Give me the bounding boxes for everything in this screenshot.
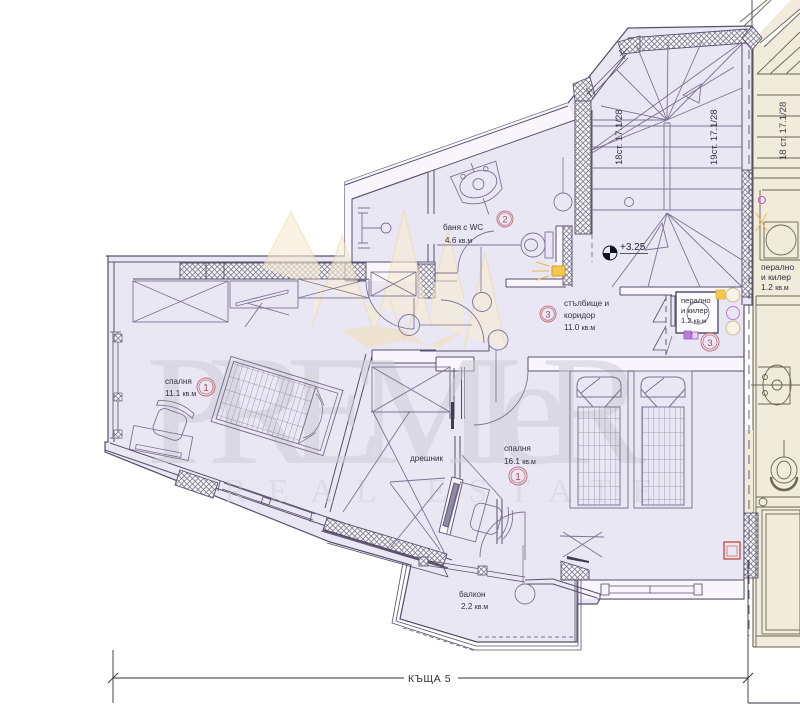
- svg-text:КЪЩА 5: КЪЩА 5: [408, 673, 451, 685]
- svg-text:баня с WC: баня с WC: [443, 223, 483, 232]
- svg-text:3: 3: [707, 338, 712, 348]
- svg-text:дрешник: дрешник: [410, 454, 444, 463]
- svg-text:19ст. 17.1/28: 19ст. 17.1/28: [709, 109, 720, 165]
- svg-text:11.0 кв.м: 11.0 кв.м: [564, 323, 595, 332]
- svg-text:перално: перално: [761, 262, 794, 272]
- svg-text:стълбище и: стълбище и: [564, 299, 609, 308]
- svg-text:спалня: спалня: [165, 377, 192, 386]
- svg-text:и килер: и килер: [761, 272, 791, 282]
- svg-text:балкон: балкон: [459, 590, 486, 599]
- svg-text:4.6 кв.м: 4.6 кв.м: [445, 236, 472, 245]
- svg-text:и килер: и килер: [681, 306, 708, 315]
- svg-text:2: 2: [502, 215, 507, 225]
- svg-text:3: 3: [545, 310, 550, 320]
- svg-text:перално: перално: [681, 296, 711, 305]
- svg-text:1: 1: [515, 472, 521, 483]
- svg-text:коридор: коридор: [564, 311, 596, 320]
- svg-text:1: 1: [203, 383, 209, 394]
- svg-text:18 ст. 17.1/28: 18 ст. 17.1/28: [778, 102, 789, 160]
- svg-text:11.1 кв.м: 11.1 кв.м: [165, 389, 196, 398]
- svg-text:18ст. 17.1/28: 18ст. 17.1/28: [614, 109, 625, 165]
- svg-text:спалня: спалня: [504, 444, 531, 453]
- svg-text:2.2 кв.м: 2.2 кв.м: [461, 602, 488, 611]
- svg-text:1.2 кв.м: 1.2 кв.м: [681, 316, 707, 325]
- svg-text:16.1 кв.м: 16.1 кв.м: [504, 457, 536, 466]
- svg-text:+3.25: +3.25: [620, 242, 646, 253]
